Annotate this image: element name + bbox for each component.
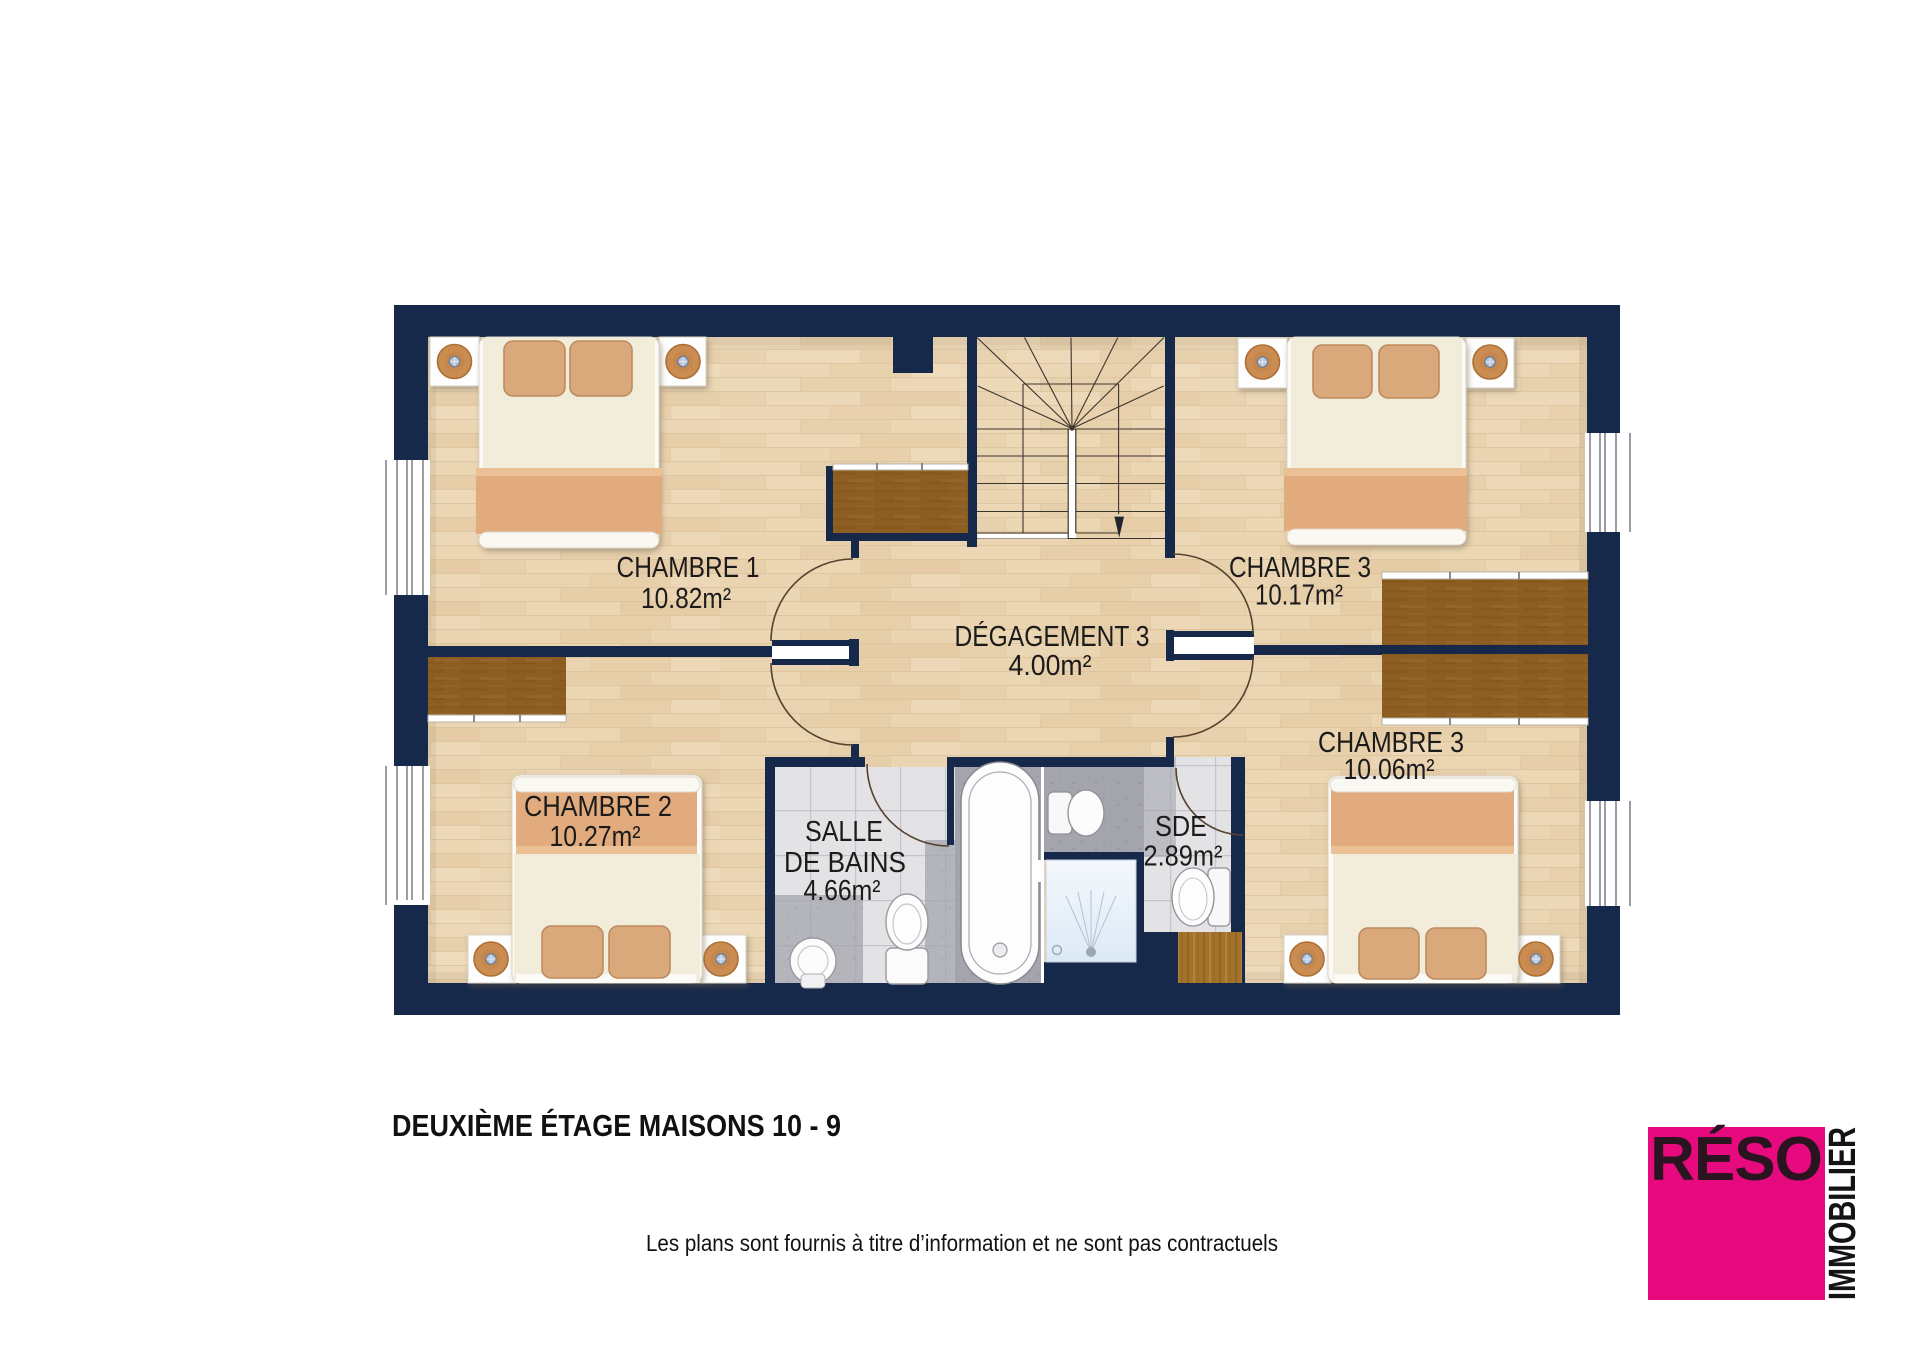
svg-text:2.89m²: 2.89m² [1144,841,1223,873]
svg-text:4.66m²: 4.66m² [804,875,881,907]
svg-text:IMMOBILIER: IMMOBILIER [1822,1127,1864,1300]
svg-text:CHAMBRE 1: CHAMBRE 1 [617,552,760,584]
svg-text:RÉSO: RÉSO [1650,1125,1822,1194]
svg-text:CHAMBRE 2: CHAMBRE 2 [524,791,672,823]
svg-text:SDE: SDE [1155,811,1207,843]
svg-text:4.00m²: 4.00m² [1009,650,1092,682]
svg-text:SALLE: SALLE [805,816,883,848]
svg-text:10.82m²: 10.82m² [641,583,731,615]
svg-text:Les plans sont fournis à titre: Les plans sont fournis à titre d’informa… [646,1230,1278,1256]
svg-text:DÉGAGEMENT 3: DÉGAGEMENT 3 [955,621,1150,653]
svg-text:DEUXIÈME ÉTAGE MAISONS 10 - 9: DEUXIÈME ÉTAGE MAISONS 10 - 9 [392,1108,841,1143]
svg-text:10.27m²: 10.27m² [550,821,641,853]
svg-text:10.06m²: 10.06m² [1344,754,1435,786]
svg-text:10.17m²: 10.17m² [1255,580,1343,612]
